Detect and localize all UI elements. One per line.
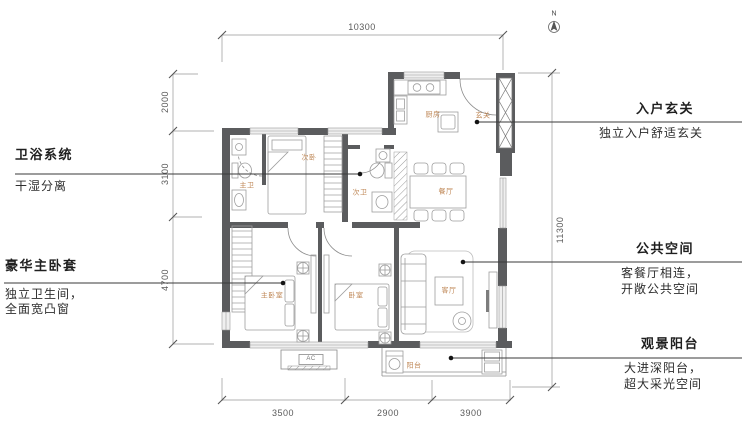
- dimension-right: 11300: [555, 217, 565, 244]
- room-label-dining: 餐厅: [439, 189, 454, 196]
- annotation-balcony-desc-2: 超大采光空间: [624, 377, 702, 391]
- room-label-master-bedroom: 主卧室: [261, 293, 284, 300]
- north-arrow-icon: [549, 21, 560, 33]
- dimension-bottom-2: 2900: [377, 408, 399, 418]
- annotation-bath-system-title: 卫浴系统: [15, 147, 73, 163]
- dimension-left-1: 2000: [160, 91, 170, 113]
- annotation-public-space-desc-1: 客餐厅相连，: [621, 266, 699, 280]
- room-label-balcony: 阳台: [407, 363, 422, 370]
- furniture-master-bath: [232, 139, 252, 210]
- annotation-balcony-title: 观景阳台: [641, 336, 699, 352]
- room-label-bedroom-2: 次卧: [302, 155, 317, 162]
- annotation-foyer-desc: 独立入户舒适玄关: [599, 126, 703, 140]
- room-label-foyer: 玄关: [476, 113, 491, 120]
- room-label-bedroom-3: 卧室: [349, 293, 364, 300]
- room-label-living: 客厅: [442, 288, 457, 295]
- annotation-master-suite-title: 豪华主卧套: [5, 258, 78, 274]
- furniture-dining: [394, 152, 466, 221]
- room-label-bath-2: 次卫: [353, 190, 368, 197]
- floor-plan-page: N 10300 2000 3100 4700 11300 3500 2900 3…: [0, 0, 750, 438]
- annotation-foyer-title: 入户玄关: [636, 101, 694, 117]
- dimension-bottom-3: 3900: [460, 408, 482, 418]
- annotation-master-suite-desc-2: 全面宽凸窗: [5, 302, 70, 316]
- dimension-top: 10300: [348, 22, 376, 32]
- annotation-master-suite-desc-1: 独立卫生间，: [5, 287, 83, 301]
- furniture-bedroom-2: [268, 136, 342, 214]
- room-label-master-bath: 主卫: [240, 183, 255, 190]
- furniture-bedroom-3: [324, 255, 391, 344]
- annotation-public-space-title: 公共空间: [636, 241, 694, 257]
- dimension-bottom-1: 3500: [272, 408, 294, 418]
- entry-x-panel: [499, 78, 512, 148]
- annotation-bath-system-desc: 干湿分离: [15, 179, 67, 193]
- room-label-kitchen: 厨房: [426, 112, 441, 119]
- annotation-balcony-desc-1: 大进深阳台，: [624, 361, 702, 375]
- furniture-bath-2: [370, 149, 392, 212]
- dimension-left-3: 4700: [160, 269, 170, 291]
- dimension-left-2: 3100: [160, 163, 170, 185]
- furniture-balcony: [386, 350, 502, 374]
- annotation-public-space-desc-2: 开敞公共空间: [621, 282, 699, 296]
- furniture-master-bedroom: [232, 226, 316, 342]
- room-label-ac: AC: [306, 356, 315, 362]
- north-label: N: [551, 11, 556, 18]
- furniture-kitchen: [394, 80, 458, 132]
